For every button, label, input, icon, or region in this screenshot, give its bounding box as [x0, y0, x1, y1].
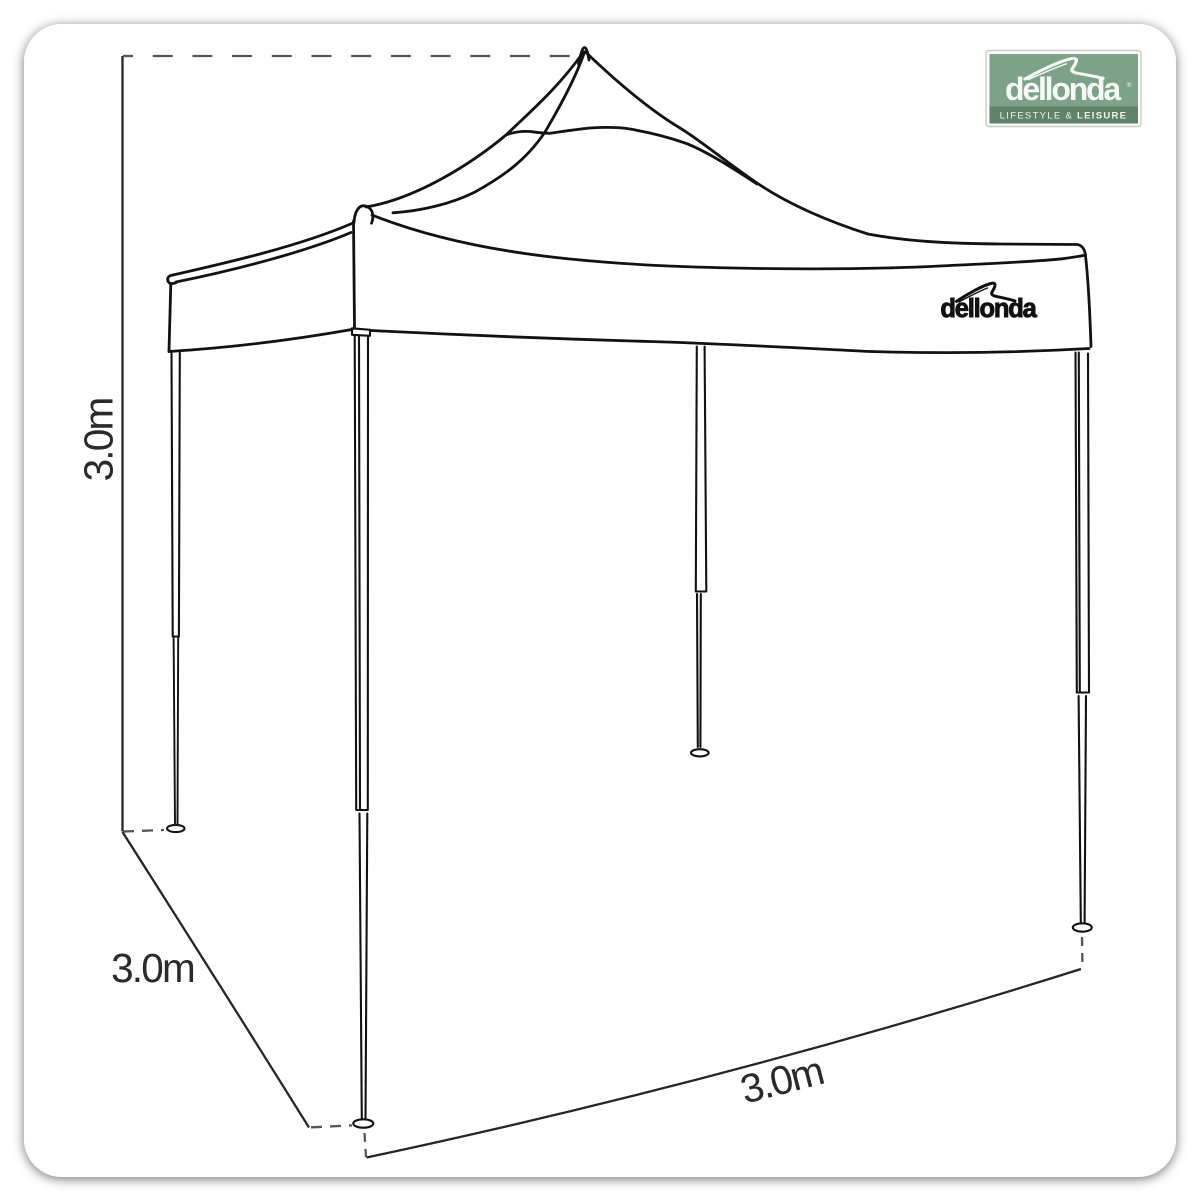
svg-text:3.0m: 3.0m: [76, 399, 122, 482]
svg-text:LIFESTYLE & LEISURE: LIFESTYLE & LEISURE: [1000, 111, 1128, 122]
svg-text:dellonda: dellonda: [940, 295, 1037, 323]
svg-text:®: ®: [1127, 81, 1132, 89]
svg-text:dellonda: dellonda: [1005, 71, 1121, 107]
svg-text:3.0m: 3.0m: [111, 945, 194, 991]
